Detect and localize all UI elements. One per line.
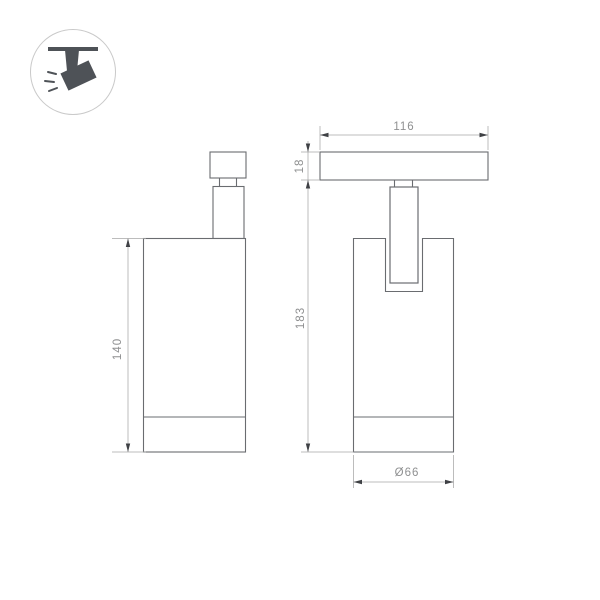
arrowhead-left [354,480,363,484]
arrowhead-down [126,444,130,453]
side-view [320,152,488,452]
dimension-track-length: 116 [320,121,488,150]
arrowhead-up [306,180,310,189]
front-body [144,239,246,453]
dimension-track-thickness-and-overall-height: 18 183 [294,141,354,452]
dimension-drawing: 140 116 18 183 [0,0,600,600]
arrowhead-up [126,239,130,248]
dimension-body-diameter: Ø66 [354,455,454,488]
front-view [144,152,247,452]
dimension-label-183: 183 [295,307,307,329]
front-track-connector [210,152,246,178]
arrowhead-down [306,444,310,453]
dimension-label-18: 18 [294,159,306,174]
front-stem [213,187,244,239]
side-track-adapter [320,152,488,180]
arrowhead-down [306,144,310,153]
dimension-label-140: 140 [112,338,124,360]
side-stem [390,187,418,283]
arrowhead-right [445,480,454,484]
drawing-canvas: 140 116 18 183 [0,0,600,600]
dimension-label-116: 116 [393,121,414,133]
arrowhead-left [320,133,329,137]
dimension-body-height: 140 [112,239,146,453]
dimension-label-diameter: Ø66 [395,467,420,479]
arrowhead-right [480,133,489,137]
